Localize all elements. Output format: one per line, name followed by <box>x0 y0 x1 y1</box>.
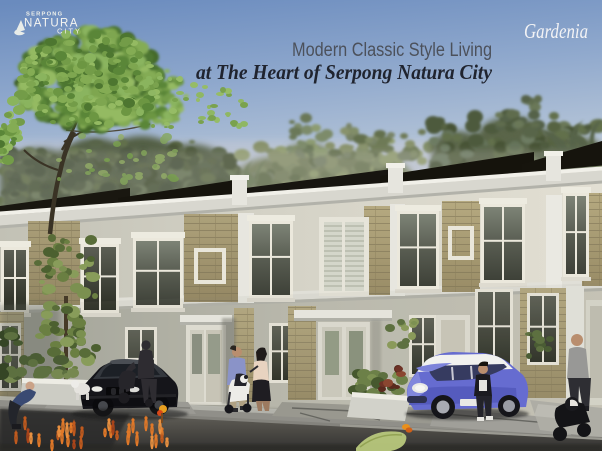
svg-text:Modern Classic Style Living: Modern Classic Style Living <box>292 40 492 61</box>
svg-text:CITY: CITY <box>57 27 82 36</box>
svg-text:at The Heart of Serpong Natura: at The Heart of Serpong Natura City <box>196 60 492 84</box>
svg-text:Gardenia: Gardenia <box>524 19 588 43</box>
